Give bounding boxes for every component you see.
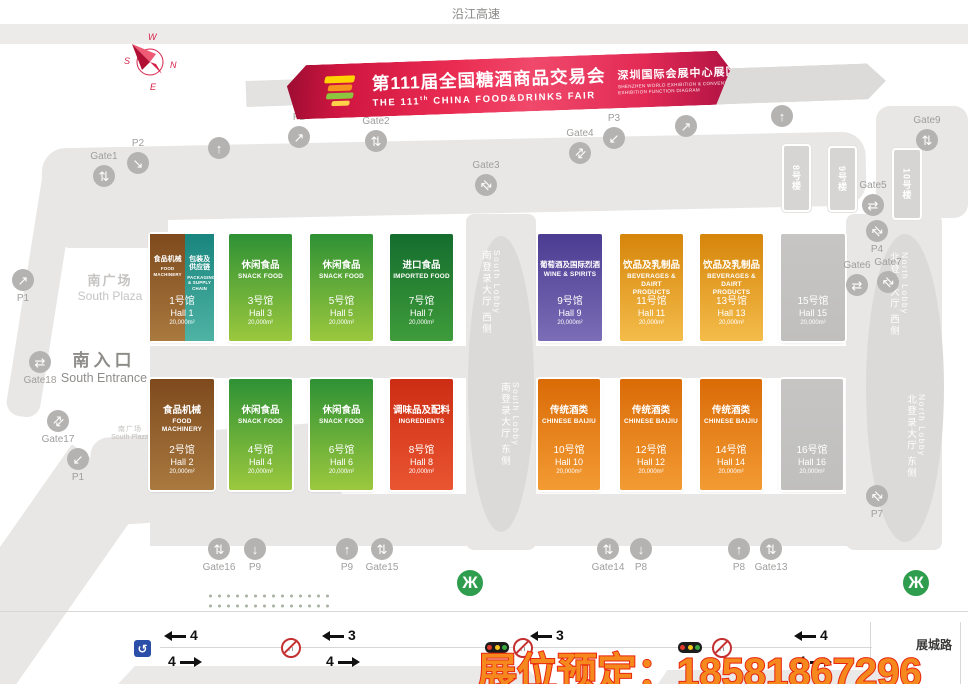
hall-info: 13号馆Hall 1320,000m² [700,296,763,327]
hall-15: 15号馆Hall 1520,000m² [781,234,845,341]
hall-info: 4号馆Hall 420,000m² [229,445,292,476]
gate7-marker-icon: ⇅ [877,271,899,293]
metro-logo-icon: Ж [455,568,485,598]
lane-number: 3 [348,627,356,643]
arrow-left-icon [330,635,344,638]
hall-category-cn: 休闲食品 [229,405,292,416]
hall-category-en: SNACK FOOD [310,418,373,426]
hall-7: 进口食品IMPORTED FOOD7号馆Hall 720,000m² [390,234,453,341]
hall-area: 20,000m² [620,320,683,328]
hall-category-cn: 传统酒类 [620,405,682,416]
hall-category-cn: 食品机械 [150,405,214,416]
arrow-glyph: ⇅ [478,177,495,194]
lane-count-right: 4 [168,653,198,669]
gate6-marker-label: Gate6 [843,260,870,271]
gate14-marker-icon: ⇅ [597,538,619,560]
hall-info: 1号馆Hall 120,000m² [150,296,214,327]
hall-category-cn: 休闲食品 [310,405,373,416]
hall-area: 20,000m² [620,469,682,477]
hall-category-cn: 休闲食品 [229,260,292,271]
hall-info: 8号馆Hall 820,000m² [390,445,453,476]
hall-16: 16号馆Hall 1620,000m² [781,379,843,490]
hall-category-cn: 饮品及乳制品 [700,260,763,271]
hall-name-en: Hall 3 [229,308,292,319]
venue-map: 沿江高速 展城路 第111届全国糖酒商品交易会 THE 111th CHINA … [0,0,968,684]
uturn-sign-icon: ↺ [134,640,151,657]
hall-name-cn: 15号馆 [781,296,845,309]
hall-6: 休闲食品SNACK FOOD6号馆Hall 620,000m² [310,379,373,490]
hall-category-en: BEVERAGES & DAIRT PRODUCTS [620,273,683,297]
hall-name-en: Hall 1 [150,308,214,319]
hall-info: 2号馆Hall 220,000m² [150,445,214,476]
gate2-marker-icon: ⇅ [365,130,387,152]
hall-name-cn: 7号馆 [390,296,453,309]
hall-name-cn: 6号馆 [310,445,373,458]
building-8号楼: 8号楼 [784,146,809,210]
gate15-marker-icon: ⇅ [371,538,393,560]
hall-area: 20,000m² [538,469,600,477]
arrow-left-icon [538,635,552,638]
p1-marker-icon: ↙ [67,448,89,470]
south-lobby-east: 南登录大厅 东侧South Lobby [497,382,523,467]
gate5-marker-icon: ⇄ [862,194,884,216]
hall-category-en: CHINESE BAIJIU [620,418,682,426]
hall-name-en: Hall 5 [310,308,373,319]
arrow-glyph: ⇅ [371,135,382,148]
p4-marker-icon: ⇅ [866,220,888,242]
hall-name-en: Hall 15 [781,308,845,319]
lane-count-left: 4 [168,627,198,643]
hall-name-cn: 1号馆 [150,296,214,309]
lane-number: 4 [326,653,334,669]
hall-category-en: SNACK FOOD [229,418,292,426]
hall-info: 5号馆Hall 520,000m² [310,296,373,327]
fair-logo-icon [320,72,363,109]
north-lobby-east: 北登录大厅 东侧North Lobby [903,394,929,479]
arrow-left-icon [802,635,816,638]
arrow-glyph: ⇅ [572,145,589,162]
arrow-glyph: ↓ [252,543,259,556]
lobby-label-cn: 北登录大厅 东侧 [903,394,917,479]
p3-marker-icon: ↙ [603,127,625,149]
hall-area: 20,000m² [390,320,453,328]
hall-category-cn: 传统酒类 [538,405,600,416]
hall-name-en: Hall 8 [390,457,453,468]
hall-name-en: Hall 16 [781,457,843,468]
gate4-marker-label: Gate4 [566,128,593,139]
hall-category-en: INGREDIENTS [390,418,453,426]
p3-marker-label: P3 [608,113,620,124]
gate7-marker-label: Gate7 [874,257,901,268]
hall-info: 6号馆Hall 620,000m² [310,445,373,476]
hall-info: 12号馆Hall 1220,000m² [620,445,682,476]
svg-text:N: N [170,60,177,70]
hall-1: 食品机械FOOD MACHINERY包装及供应链PACKAGING & SUPP… [150,234,214,341]
hall-category-en: CHINESE BAIJIU [700,418,762,426]
lobby-label-cn: 南登录大厅 西侧 [478,250,492,335]
hall-12: 传统酒类CHINESE BAIJIU12号馆Hall 1220,000m² [620,379,682,490]
arrow-glyph: ⇅ [880,274,897,291]
hall-name-en: Hall 10 [538,457,600,468]
no-uturn-sign-icon: ∩ [281,638,301,658]
gate5-marker-label: Gate5 [859,180,886,191]
hall-10: 传统酒类CHINESE BAIJIU10号馆Hall 1020,000m² [538,379,600,490]
gate13-marker-label: Gate13 [755,562,788,573]
p8-marker-icon: ↓ [630,538,652,560]
hall-area: 20,000m² [310,469,373,477]
arrow-glyph: ↑ [344,543,351,556]
hall-name-cn: 4号馆 [229,445,292,458]
arrow-glyph: ⇅ [766,543,777,556]
building-label: 9号楼 [836,166,849,192]
expressway-label: 沿江高速 [452,5,500,22]
hall-name-cn: 8号馆 [390,445,453,458]
hall-category-cn: 进口食品 [390,260,453,271]
building-label: 8号楼 [790,165,803,191]
p9-marker-label: P9 [341,562,353,573]
hall-area: 20,000m² [700,320,763,328]
arrow-left-icon [172,635,186,638]
gate18-marker-icon: ⇄ [29,351,51,373]
p1-marker-icon: ↗ [12,269,34,291]
gate14-marker-label: Gate14 [592,562,625,573]
building-label: 10号楼 [901,168,914,200]
hall-name-cn: 12号馆 [620,445,682,458]
hall-name-cn: 10号馆 [538,445,600,458]
hall-category-en: PACKAGING & SUPPLY CHAIN [185,275,214,292]
hall-category-en: CHINESE BAIJIU [538,418,600,426]
hall-name-en: Hall 14 [700,457,762,468]
arrow-glyph: ⇅ [922,134,933,147]
hall-13: 饮品及乳制品BEVERAGES & DAIRT PRODUCTS13号馆Hall… [700,234,763,341]
arrow-glyph: ↑ [216,142,223,155]
lobby-label-en: South Lobby [492,250,502,335]
p9-marker-label: P9 [249,562,261,573]
lobby-label-en: North Lobby [917,394,927,479]
arrow-glyph: ⇅ [50,413,67,430]
hall-area: 20,000m² [310,320,373,328]
p9-marker-icon: ↑ [336,538,358,560]
hall-8: 调味品及配料INGREDIENTS8号馆Hall 820,000m² [390,379,453,490]
hall-area: 20,000m² [781,469,843,477]
hall-info: 15号馆Hall 1520,000m² [781,296,845,327]
hall-name-en: Hall 7 [390,308,453,319]
hall-name-cn: 9号馆 [538,296,602,309]
event-banner: 第111届全国糖酒商品交易会 THE 111th CHINA FOOD&DRIN… [286,50,732,119]
arrow-glyph: ↙ [73,453,84,466]
gate9-marker-label: Gate9 [913,115,940,126]
arrow-glyph: ↗ [18,274,29,287]
south-entrance-cn: 南入口 [28,346,180,371]
p1-marker-label: P1 [17,293,29,304]
hall-category-cn: 调味品及配料 [390,405,453,416]
hall-category-cn: 葡萄酒及国际烈酒 [538,260,602,269]
tree-row [206,602,334,609]
hall-3: 休闲食品SNACK FOOD3号馆Hall 320,000m² [229,234,292,341]
gate6-marker-icon: ⇄ [846,274,868,296]
arrow-marker-icon: ↑ [208,137,230,159]
hall-category-en: WINE & SPIRITS [538,271,602,279]
arrow-glyph: ⇅ [869,223,886,240]
building-9号楼: 9号楼 [830,148,855,210]
gate1-marker-icon: ⇅ [93,165,115,187]
hall-2: 食品机械FOOD MACHINERY2号馆Hall 220,000m² [150,379,214,490]
arrow-glyph: ↘ [133,157,144,170]
arrow-right-icon [338,661,352,664]
hall-category-cn: 饮品及乳制品 [620,260,683,271]
hall-info: 11号馆Hall 1120,000m² [620,296,683,327]
arrow-glyph: ↑ [736,543,743,556]
road-divider [960,622,961,684]
arrow-glyph: ⇄ [852,279,863,292]
p2-marker-icon: ↘ [127,152,149,174]
p2-marker-icon: ↗ [288,126,310,148]
hall-14: 传统酒类CHINESE BAIJIU14号馆Hall 1420,000m² [700,379,762,490]
p8-marker-icon: ↑ [728,538,750,560]
gate15-marker-label: Gate15 [366,562,399,573]
gate18-marker-label: Gate18 [24,375,57,386]
p9-marker-icon: ↓ [244,538,266,560]
hall-category-en: SNACK FOOD [229,273,292,281]
hall-category-cn: 包装及供应链 [185,256,214,273]
banner-titles: 第111届全国糖酒商品交易会 THE 111th CHINA FOOD&DRIN… [371,63,606,109]
arrow-glyph: ↗ [681,120,692,133]
p7-marker-label: P7 [871,509,883,520]
hall-category-en: SNACK FOOD [310,273,373,281]
hall-area: 20,000m² [150,320,214,328]
hall-info: 7号馆Hall 720,000m² [390,296,453,327]
p8-marker-label: P8 [635,562,647,573]
lobby-label-en: South Lobby [511,382,521,467]
arrow-glyph: ↙ [609,132,620,145]
arrow-glyph: ⇅ [99,170,110,183]
hall-name-en: Hall 13 [700,308,763,319]
tree-row [206,592,334,599]
arrow-right-icon [180,661,194,664]
svg-text:W: W [148,32,158,42]
hall-area: 20,000m² [229,320,292,328]
hall-name-en: Hall 4 [229,457,292,468]
gate17-marker-icon: ⇅ [47,410,69,432]
hall-area: 20,000m² [700,469,762,477]
arrow-glyph: ⇅ [603,543,614,556]
gate3-marker-icon: ⇅ [475,174,497,196]
svg-text:E: E [150,82,157,92]
gate1-marker-label: Gate1 [90,151,117,162]
hall-info: 9号馆Hall 920,000m² [538,296,602,327]
hall-name-en: Hall 9 [538,308,602,319]
hall-4: 休闲食品SNACK FOOD4号馆Hall 420,000m² [229,379,292,490]
hall-area: 20,000m² [538,320,602,328]
hall-11: 饮品及乳制品BEVERAGES & DAIRT PRODUCTS11号馆Hall… [620,234,683,341]
gate4-marker-icon: ⇅ [569,142,591,164]
arrow-marker-icon: ↑ [771,105,793,127]
arrow-glyph: ⇅ [214,543,225,556]
hall-category-en: FOOD MACHINERY [150,266,185,277]
arrow-glyph: ↗ [294,131,305,144]
hall-9: 葡萄酒及国际烈酒WINE & SPIRITS9号馆Hall 920,000m² [538,234,602,341]
gate3-marker-label: Gate3 [472,160,499,171]
hall-name-cn: 16号馆 [781,445,843,458]
arrow-glyph: ⇅ [869,488,886,505]
hall-info: 16号馆Hall 1620,000m² [781,445,843,476]
svg-text:S: S [124,56,130,66]
hall-category-en: FOOD MACHINERY [150,418,214,434]
hall-name-cn: 3号馆 [229,296,292,309]
hall-area: 20,000m² [390,469,453,477]
hall-category-cn: 休闲食品 [310,260,373,271]
lane-count-right: 4 [326,653,356,669]
hall-name-cn: 2号馆 [150,445,214,458]
south-lobby-west: 南登录大厅 西侧South Lobby [478,250,504,335]
hall-category-en: BEVERAGES & DAIRT PRODUCTS [700,273,763,297]
gate2-marker-label: Gate2 [362,116,389,127]
gate16-marker-label: Gate16 [203,562,236,573]
hall-category-cn: 传统酒类 [700,405,762,416]
lane-number: 4 [190,627,198,643]
p1-marker-label: P1 [72,472,84,483]
hall-name-en: Hall 6 [310,457,373,468]
gate16-marker-icon: ⇅ [208,538,230,560]
p7-marker-icon: ⇅ [866,485,888,507]
gate13-marker-icon: ⇅ [760,538,782,560]
building-10号楼: 10号楼 [894,150,920,218]
hall-category-en: IMPORTED FOOD [390,273,453,281]
hall-area: 20,000m² [229,469,292,477]
p8-marker-label: P8 [733,562,745,573]
hall-info: 3号馆Hall 320,000m² [229,296,292,327]
hall-5: 休闲食品SNACK FOOD5号馆Hall 520,000m² [310,234,373,341]
gate9-marker-icon: ⇅ [916,129,938,151]
booking-phone-overlay: 展位预定：18581867296 [477,640,922,684]
p2-marker-label: P2 [132,138,144,149]
hall-area: 20,000m² [781,320,845,328]
arrow-glyph: ↑ [779,110,786,123]
hall-name-cn: 13号馆 [700,296,763,309]
arrow-marker-icon: ↗ [675,115,697,137]
arrow-glyph: ⇄ [35,356,46,369]
hall-name-cn: 11号馆 [620,296,683,309]
road-edge-line [0,611,968,612]
lane-count-left: 3 [326,627,356,643]
hall-area: 20,000m² [150,469,214,477]
hall-category-cn: 食品机械 [150,256,185,264]
hall-name-cn: 5号馆 [310,296,373,309]
p4-marker-label: P4 [871,244,883,255]
metro-logo-icon: Ж [901,568,931,598]
lobby-label-cn: 南登录大厅 东侧 [497,382,511,467]
hall-name-en: Hall 2 [150,457,214,468]
lane-number: 4 [168,653,176,669]
compass-icon: W N E S [120,30,184,94]
hall-name-cn: 14号馆 [700,445,762,458]
arrow-glyph: ↓ [638,543,645,556]
hall-name-en: Hall 11 [620,308,683,319]
arrow-glyph: ⇄ [868,199,879,212]
hall-info: 14号馆Hall 1420,000m² [700,445,762,476]
hall-name-en: Hall 12 [620,457,682,468]
gate17-marker-label: Gate17 [42,434,75,445]
hall-info: 10号馆Hall 1020,000m² [538,445,600,476]
arrow-glyph: ⇅ [377,543,388,556]
